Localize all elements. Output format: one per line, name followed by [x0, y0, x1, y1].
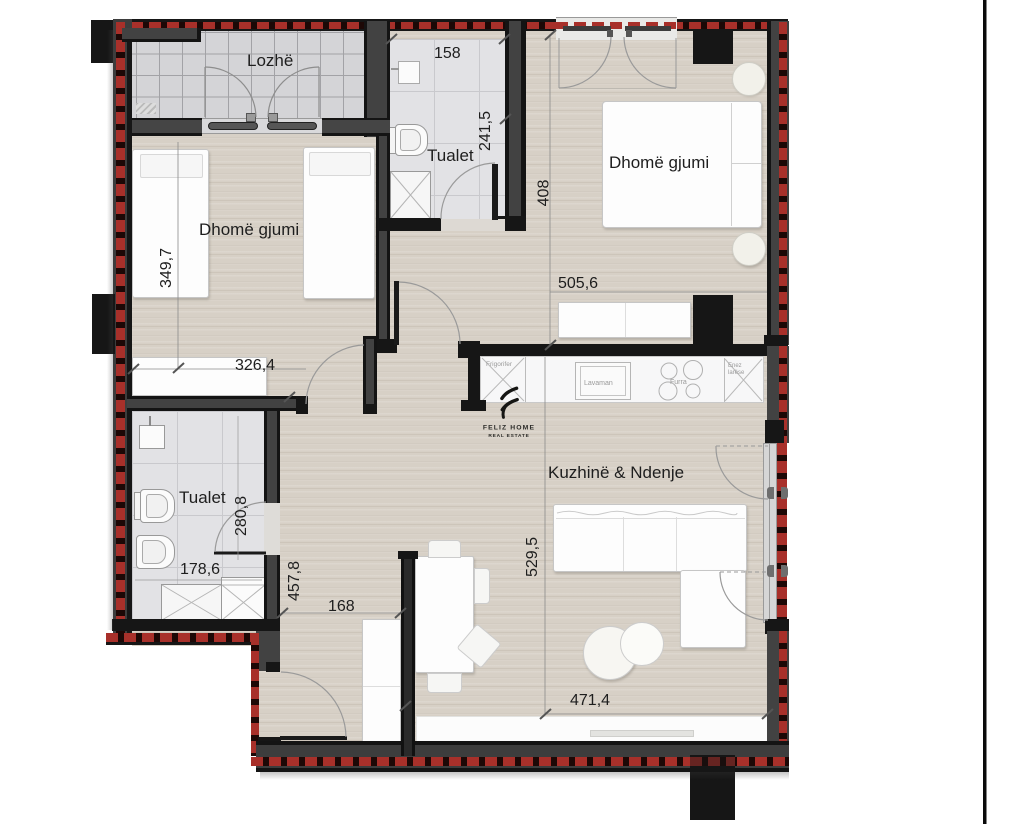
- svg-text:REAL ESTATE: REAL ESTATE: [488, 433, 529, 439]
- svg-text:FELIZ HOME: FELIZ HOME: [483, 425, 535, 432]
